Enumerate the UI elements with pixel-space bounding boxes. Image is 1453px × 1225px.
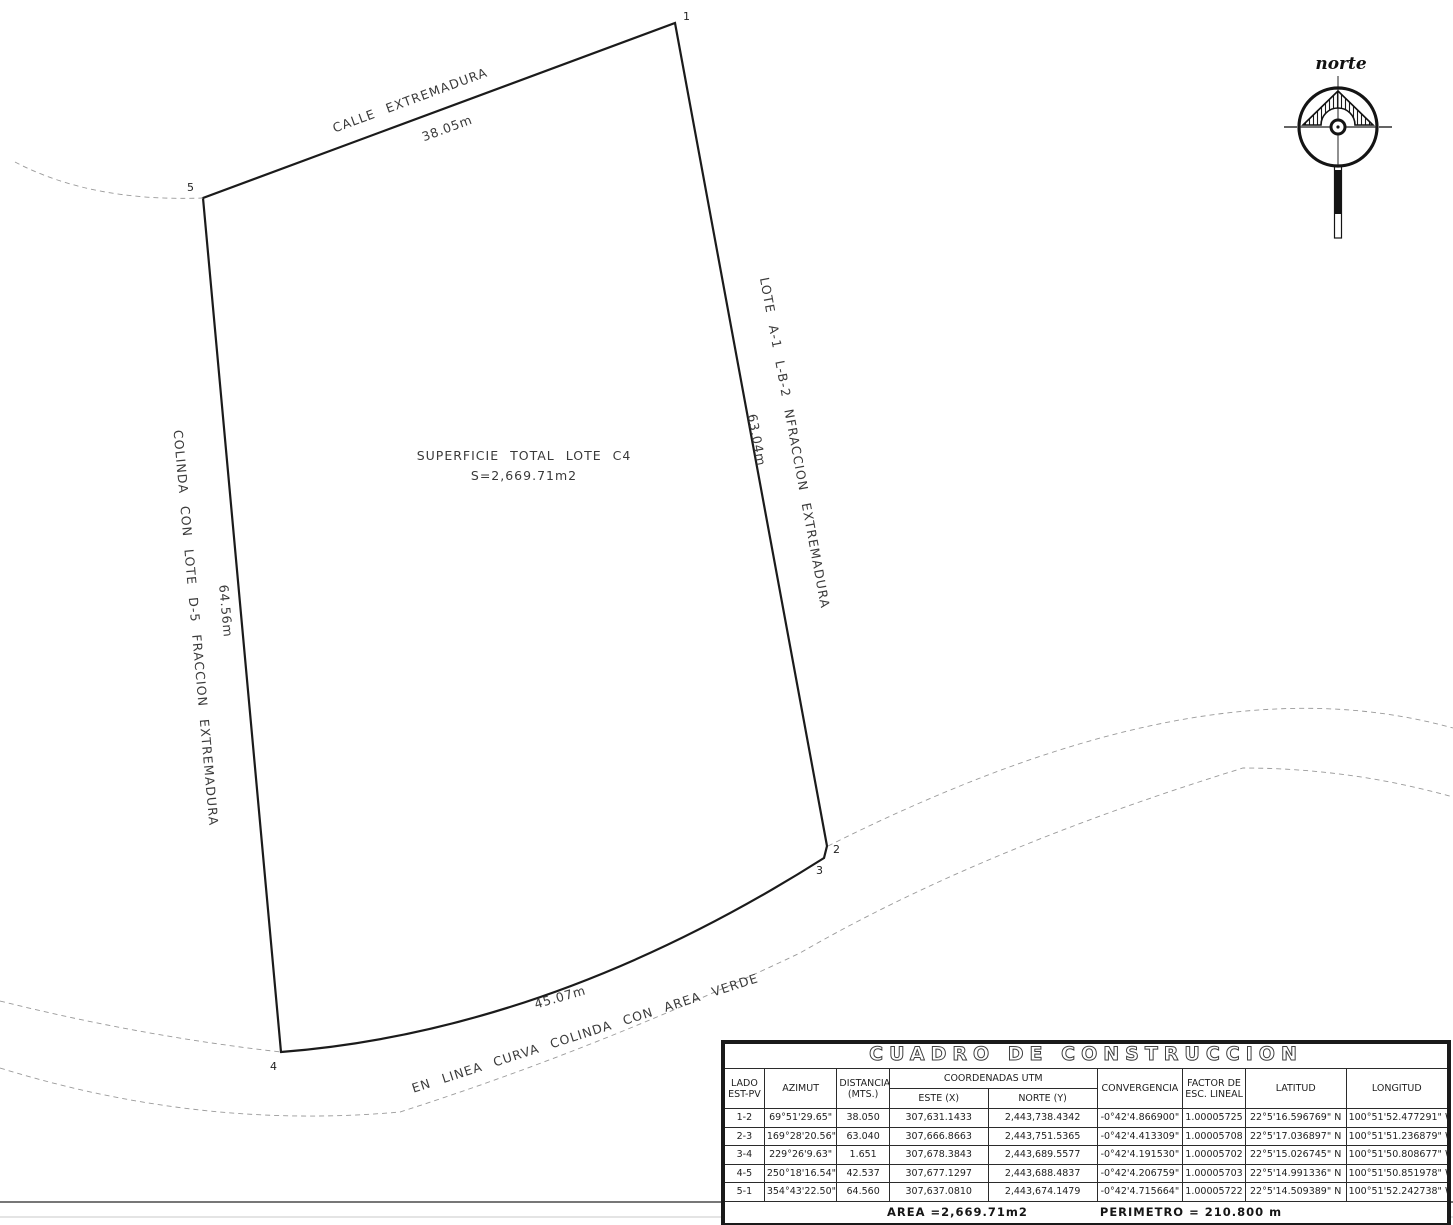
lot-boundary-polygon	[203, 23, 827, 1052]
lot-surface-note: SUPERFICIE TOTAL LOTE C4 S=2,669.71m2	[417, 446, 632, 486]
cell-lado: 4-5	[724, 1164, 764, 1183]
lot-surface-value: S=2,669.71m2	[417, 466, 632, 486]
col-header-longitud: LONGITUD	[1346, 1069, 1448, 1109]
col-header-convergencia: CONVERGENCIA	[1097, 1069, 1183, 1109]
cell-este: 307,631.1433	[889, 1109, 988, 1128]
lot-surface-title: SUPERFICIE TOTAL LOTE C4	[417, 446, 632, 466]
cell-lado: 5-1	[724, 1183, 764, 1202]
table-row: 3-4 229°26'9.63" 1.651 307,678.3843 2,44…	[724, 1146, 1448, 1165]
cell-norte: 2,443,738.4342	[988, 1109, 1097, 1128]
cell-convergencia: -0°42'4.191530"	[1097, 1146, 1183, 1165]
cell-lado: 2-3	[724, 1127, 764, 1146]
cell-azimut: 229°26'9.63"	[764, 1146, 837, 1165]
cell-longitud: 100°51'50.851978" W	[1346, 1164, 1448, 1183]
cell-distancia: 63.040	[837, 1127, 889, 1146]
vertex-label-1: 1	[683, 10, 690, 23]
cell-azimut: 250°18'16.54"	[764, 1164, 837, 1183]
vertex-label-4: 4	[270, 1060, 277, 1073]
col-header-coordenadas: COORDENADAS UTM	[889, 1069, 1097, 1089]
table-title-row: CUADRO DE CONSTRUCCION	[724, 1043, 1448, 1069]
cell-factor: 1.00005722	[1183, 1183, 1246, 1202]
cell-lado: 3-4	[724, 1146, 764, 1165]
table-row: 1-2 69°51'29.65" 38.050 307,631.1433 2,4…	[724, 1109, 1448, 1128]
cell-distancia: 38.050	[837, 1109, 889, 1128]
table-row: 5-1 354°43'22.50" 64.560 307,637.0810 2,…	[724, 1183, 1448, 1202]
col-header-norte: NORTE (Y)	[988, 1089, 1097, 1109]
cell-norte: 2,443,688.4837	[988, 1164, 1097, 1183]
col-header-factor: FACTOR DE ESC. LINEAL	[1183, 1069, 1246, 1109]
cell-lado: 1-2	[724, 1109, 764, 1128]
table-footer-row: AREA =2,669.71m2 PERIMETRO = 210.800 m	[724, 1201, 1448, 1224]
cell-longitud: 100°51'51.236879" W	[1346, 1127, 1448, 1146]
cell-norte: 2,443,689.5577	[988, 1146, 1097, 1165]
cell-latitud: 22°5'14.509389" N	[1245, 1183, 1346, 1202]
hdr-lado-line2: EST-PV	[728, 1089, 761, 1100]
cell-latitud: 22°5'14.991336" N	[1245, 1164, 1346, 1183]
cell-convergencia: -0°42'4.715664"	[1097, 1183, 1183, 1202]
construction-table: CUADRO DE CONSTRUCCION LADO EST-PV AZIMU…	[723, 1042, 1449, 1225]
col-header-lado: LADO EST-PV	[724, 1069, 764, 1109]
cell-latitud: 22°5'15.026745" N	[1245, 1146, 1346, 1165]
cell-azimut: 69°51'29.65"	[764, 1109, 837, 1128]
cell-este: 307,666.8663	[889, 1127, 988, 1146]
cell-convergencia: -0°42'4.206759"	[1097, 1164, 1183, 1183]
cell-latitud: 22°5'16.596769" N	[1245, 1109, 1346, 1128]
cell-azimut: 169°28'20.56"	[764, 1127, 837, 1146]
cell-este: 307,677.1297	[889, 1164, 988, 1183]
cell-este: 307,678.3843	[889, 1146, 988, 1165]
cell-norte: 2,443,674.1479	[988, 1183, 1097, 1202]
cell-norte: 2,443,751.5365	[988, 1127, 1097, 1146]
cell-convergencia: -0°42'4.413309"	[1097, 1127, 1183, 1146]
col-header-latitud: LATITUD	[1245, 1069, 1346, 1109]
cell-longitud: 100°51'50.808677" W	[1346, 1146, 1448, 1165]
area-total: AREA =2,669.71m2	[887, 1207, 1028, 1218]
vertex-label-5: 5	[187, 181, 194, 194]
col-header-azimut: AZIMUT	[764, 1069, 837, 1109]
col-header-distancia: DISTANCIA (MTS.)	[837, 1069, 889, 1109]
cell-latitud: 22°5'17.036897" N	[1245, 1127, 1346, 1146]
cell-este: 307,637.0810	[889, 1183, 988, 1202]
hdr-factor-line1: FACTOR DE	[1187, 1078, 1241, 1089]
hdr-dist-line1: DISTANCIA	[839, 1078, 889, 1089]
cell-azimut: 354°43'22.50"	[764, 1183, 837, 1202]
cell-factor: 1.00005702	[1183, 1146, 1246, 1165]
north-label: norte	[1315, 54, 1366, 74]
table-header-row-1: LADO EST-PV AZIMUT DISTANCIA (MTS.) COOR…	[724, 1069, 1448, 1089]
dashed-curve-top-left	[15, 162, 203, 198]
cell-factor: 1.00005725	[1183, 1109, 1246, 1128]
dashed-curve-left-road-edge	[0, 1001, 281, 1052]
north-arrow-icon	[1284, 76, 1392, 238]
survey-drawing-sheet: CALLE EXTREMADURA 38.05m LOTE A-1 L-B-2 …	[0, 0, 1453, 1225]
cell-factor: 1.00005708	[1183, 1127, 1246, 1146]
cell-longitud: 100°51'52.242738" W	[1346, 1183, 1448, 1202]
vertex-label-3: 3	[816, 864, 823, 877]
table-row: 4-5 250°18'16.54" 42.537 307,677.1297 2,…	[724, 1164, 1448, 1183]
table-title: CUADRO DE CONSTRUCCION	[869, 1043, 1303, 1065]
table-row: 2-3 169°28'20.56" 63.040 307,666.8663 2,…	[724, 1127, 1448, 1146]
hdr-lado-line1: LADO	[731, 1078, 758, 1089]
hdr-factor-line2: ESC. LINEAL	[1185, 1089, 1243, 1100]
perimetro-total: PERIMETRO = 210.800 m	[1100, 1207, 1282, 1218]
cell-distancia: 42.537	[837, 1164, 889, 1183]
cell-distancia: 1.651	[837, 1146, 889, 1165]
vertex-label-2: 2	[833, 843, 840, 856]
cell-longitud: 100°51'52.477291" W	[1346, 1109, 1448, 1128]
col-header-este: ESTE (X)	[889, 1089, 988, 1109]
hdr-dist-line2: (MTS.)	[848, 1089, 878, 1100]
cell-factor: 1.00005703	[1183, 1164, 1246, 1183]
cell-distancia: 64.560	[837, 1183, 889, 1202]
cell-convergencia: -0°42'4.866900"	[1097, 1109, 1183, 1128]
